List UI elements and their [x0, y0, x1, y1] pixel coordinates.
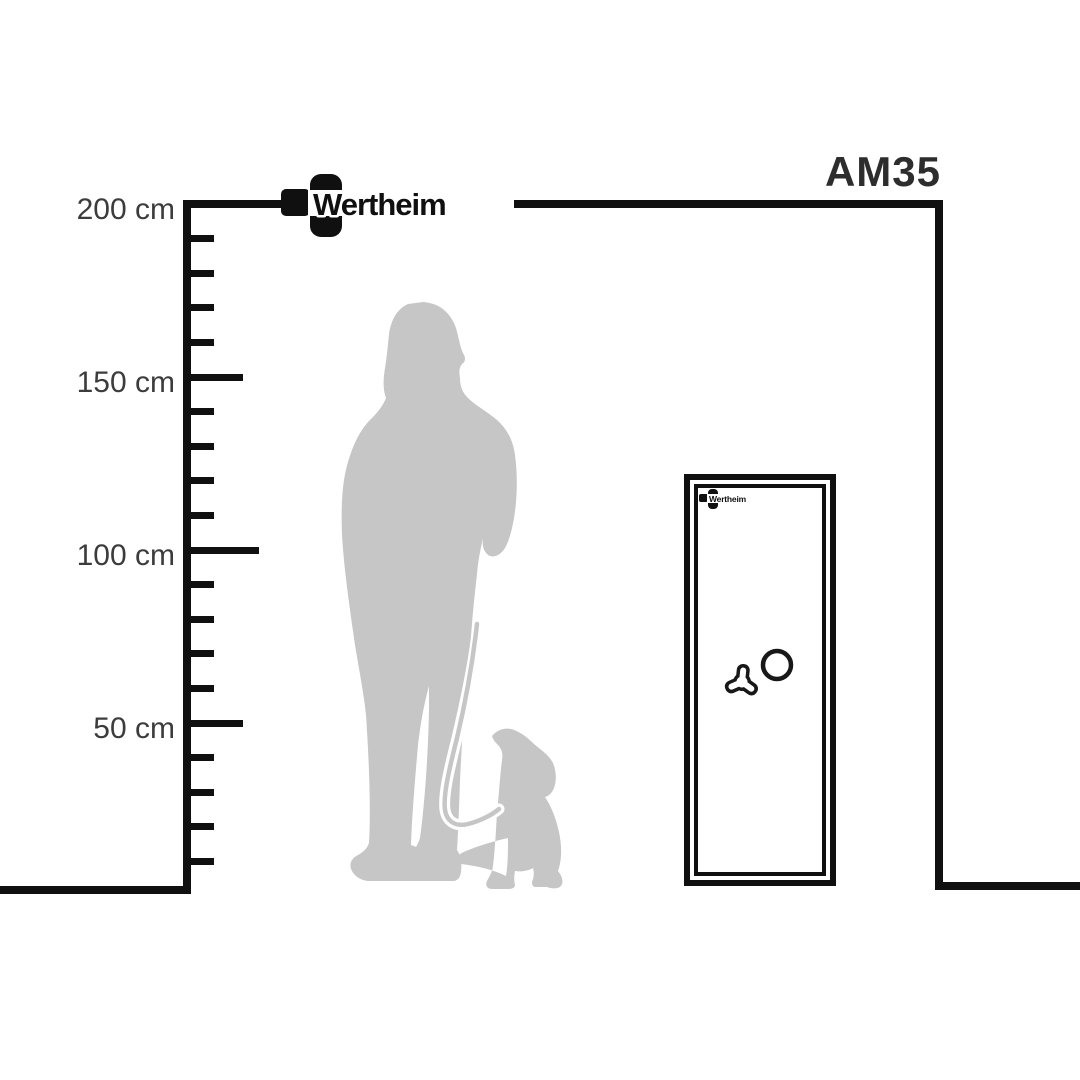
safe-dial-icon: [763, 651, 791, 679]
dog-silhouette: [453, 729, 562, 889]
safe-handle-icon: [722, 662, 763, 698]
size-comparison-diagram: 200 cm150 cm100 cm50 cm AM35 Wertheim We…: [0, 0, 1080, 1080]
safe-face: Wertheim: [690, 480, 830, 880]
person-silhouette: [342, 302, 517, 881]
safe-illustration: Wertheim: [684, 474, 836, 886]
safe-logo-text: Wertheim: [709, 494, 747, 504]
safe-brand-logo: Wertheim: [699, 489, 749, 509]
safe-logo-square-icon: [699, 494, 708, 502]
silhouette-group: [0, 0, 1080, 1080]
